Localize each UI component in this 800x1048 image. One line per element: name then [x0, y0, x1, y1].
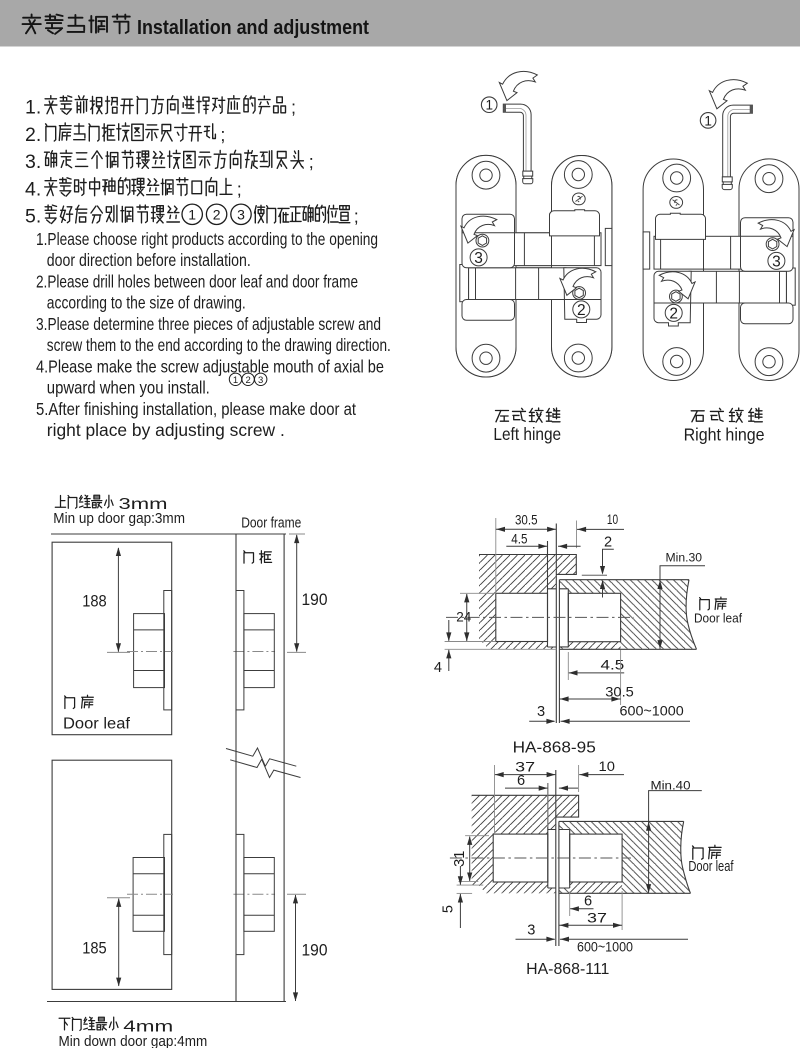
svg-text:;: ; [220, 125, 225, 145]
svg-text:2: 2 [577, 302, 586, 319]
svg-text:1: 1 [233, 375, 238, 386]
svg-text:6: 6 [584, 894, 592, 910]
svg-text:4.5: 4.5 [511, 532, 527, 548]
svg-text:according to the size of draw: according to the size of drawing. [47, 293, 246, 313]
svg-text:Door frame: Door frame [241, 516, 301, 532]
svg-text:3: 3 [258, 375, 263, 386]
svg-text:30.5: 30.5 [605, 684, 634, 700]
svg-text:;: ; [237, 179, 242, 199]
svg-text:5.: 5. [25, 206, 41, 228]
svg-text:1: 1 [188, 206, 196, 222]
svg-text:Left hinge: Left hinge [493, 424, 561, 444]
svg-text:HA-868-95: HA-868-95 [513, 740, 596, 757]
svg-text:;: ; [354, 207, 359, 227]
svg-text:6: 6 [517, 773, 525, 789]
svg-text:37: 37 [587, 910, 607, 926]
svg-text:2: 2 [245, 375, 250, 386]
svg-text:190: 190 [302, 941, 328, 960]
svg-text:4.Please make the screw adjust: 4.Please make the screw adjustable mouth… [36, 356, 384, 376]
svg-text:Right hinge: Right hinge [684, 425, 765, 445]
svg-text:3: 3 [527, 923, 535, 939]
svg-text:Min up door gap:3mm: Min up door gap:3mm [53, 511, 185, 527]
svg-text:5.After finishing installation: 5.After finishing installation, please m… [36, 399, 356, 419]
svg-text:Min down door gap:4mm: Min down door gap:4mm [59, 1034, 208, 1048]
svg-text:right place by adjusting screw: right place by adjusting screw . [47, 420, 285, 440]
svg-text:HA-868-111: HA-868-111 [526, 961, 610, 978]
svg-text:door direction before installa: door direction before installation. [47, 250, 251, 270]
svg-text:3.Please determine three piece: 3.Please determine three pieces of adjus… [36, 314, 381, 334]
svg-text:2.: 2. [25, 124, 41, 146]
svg-text:31: 31 [452, 851, 468, 867]
svg-text:3: 3 [474, 250, 483, 267]
svg-text:Min.30: Min.30 [666, 551, 703, 565]
svg-text:3: 3 [772, 254, 781, 271]
svg-text:4.: 4. [25, 178, 41, 200]
svg-text:1: 1 [704, 113, 712, 128]
svg-text:3.: 3. [25, 151, 41, 173]
svg-text:185: 185 [82, 939, 107, 958]
svg-text:screw them to the end accordin: screw them to the end according to the d… [47, 335, 391, 355]
svg-text:Door leaf: Door leaf [63, 715, 131, 732]
svg-text:Door leaf: Door leaf [694, 610, 742, 625]
svg-text:3: 3 [537, 704, 545, 720]
svg-text:;: ; [309, 152, 314, 172]
svg-text:600~1000: 600~1000 [620, 704, 684, 719]
svg-text:10: 10 [607, 512, 618, 528]
svg-text:30.5: 30.5 [515, 513, 538, 529]
svg-text:Installation and adjustment: Installation and adjustment [137, 16, 369, 39]
svg-text:1: 1 [485, 98, 493, 113]
svg-text:2: 2 [604, 535, 612, 551]
svg-text:2: 2 [669, 306, 678, 323]
svg-text:5: 5 [440, 905, 456, 913]
svg-text:1.Please choose right products: 1.Please choose right products according… [36, 229, 378, 249]
svg-text:3: 3 [237, 206, 245, 222]
svg-text:10: 10 [599, 759, 616, 775]
svg-text:24: 24 [456, 609, 471, 625]
svg-text:Door leaf: Door leaf [688, 858, 734, 875]
svg-text:upward when you install.: upward when you install. [47, 378, 210, 398]
svg-text:2: 2 [213, 206, 221, 222]
svg-text:188: 188 [82, 592, 107, 611]
svg-text:1.: 1. [25, 97, 41, 119]
svg-text:2.Please drill holes between d: 2.Please drill holes between door leaf a… [36, 271, 358, 291]
svg-text:600~1000: 600~1000 [577, 940, 633, 955]
svg-text:4: 4 [434, 660, 442, 676]
svg-text:190: 190 [302, 590, 328, 609]
svg-text:4mm: 4mm [123, 1018, 173, 1035]
svg-text:;: ; [291, 98, 296, 118]
